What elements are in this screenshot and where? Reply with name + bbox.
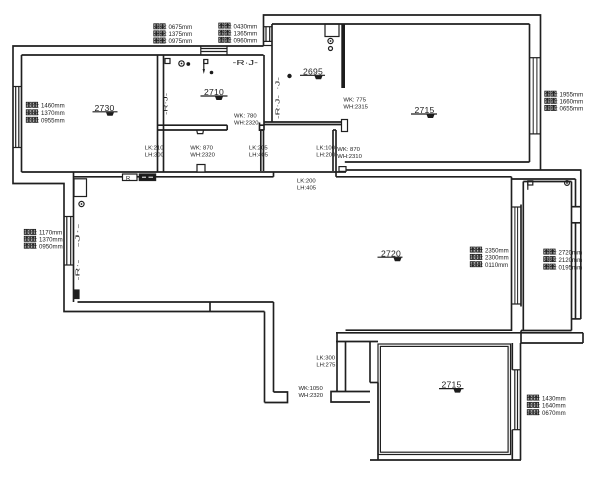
svg-text:: 1460mm: : 1460mm (38, 103, 65, 110)
svg-text:-J·-: -J·- (76, 223, 82, 247)
svg-text:: 1375mm: : 1375mm (165, 31, 192, 38)
svg-text:: 1660mm: : 1660mm (556, 99, 583, 106)
svg-text:-R·J-: -R·J- (276, 95, 282, 119)
svg-text:LK:100: LK:100 (316, 145, 335, 151)
svg-text:WK:1050: WK:1050 (299, 386, 324, 392)
svg-text:: 1640mm: : 1640mm (539, 403, 566, 410)
svg-text:-R·J-: -R·J- (233, 60, 260, 67)
svg-text:R: R (126, 176, 130, 182)
svg-text:LK:300: LK:300 (316, 355, 335, 361)
svg-text:LK:200: LK:200 (297, 179, 316, 185)
svg-text:·J-: ·J- (276, 77, 282, 90)
svg-text:WH:2320: WH:2320 (299, 393, 324, 399)
svg-text:: 1370mm: : 1370mm (38, 110, 65, 117)
svg-text:: 1955mm: : 1955mm (556, 91, 583, 98)
svg-text:: 0670mm: : 0670mm (539, 410, 566, 417)
svg-text:: 1430mm: : 1430mm (539, 395, 566, 402)
svg-text:: 0430mm: : 0430mm (230, 23, 257, 30)
svg-text:WH:2320: WH:2320 (190, 152, 215, 158)
svg-text:WH:2320: WH:2320 (234, 121, 259, 127)
svg-text:: 1365mm: : 1365mm (230, 30, 257, 37)
svg-text:: 0110mm: : 0110mm (482, 262, 509, 269)
svg-text:LK:210: LK:210 (145, 145, 164, 151)
svg-text:-R·-: -R·- (76, 259, 82, 280)
svg-text:: 0975mm: : 0975mm (165, 38, 192, 45)
svg-text:: 2720mm: : 2720mm (555, 249, 582, 256)
svg-text:: 0960mm: : 0960mm (230, 38, 257, 45)
svg-text:: 2300mm: : 2300mm (482, 255, 509, 262)
svg-text:: 0655mm: : 0655mm (556, 106, 583, 113)
svg-text:LH:405: LH:405 (249, 152, 269, 158)
svg-text:: 0195mm: : 0195mm (555, 264, 582, 271)
svg-text:: 0675mm: : 0675mm (165, 24, 192, 31)
svg-text:LH:200: LH:200 (316, 152, 336, 158)
svg-text:WH:2315: WH:2315 (343, 104, 368, 110)
svg-text:WK: 775: WK: 775 (343, 97, 366, 103)
svg-text:LH:300: LH:300 (145, 152, 165, 158)
svg-text:LK:205: LK:205 (249, 145, 268, 151)
svg-text:WK: 870: WK: 870 (190, 145, 213, 151)
svg-text:LH:275: LH:275 (316, 362, 336, 368)
svg-text:: 0950mm: : 0950mm (36, 243, 63, 250)
svg-text:: 0955mm: : 0955mm (38, 118, 65, 125)
svg-text:LH:405: LH:405 (297, 186, 317, 192)
svg-text:: 2120mm: : 2120mm (555, 257, 582, 264)
svg-text:WK: 780: WK: 780 (234, 114, 257, 120)
svg-text:: 2350mm: : 2350mm (482, 247, 509, 254)
svg-text:-R·J-: -R·J- (164, 93, 170, 115)
svg-text:WH:2310: WH:2310 (337, 154, 362, 160)
svg-text:WK: 870: WK: 870 (337, 147, 360, 153)
